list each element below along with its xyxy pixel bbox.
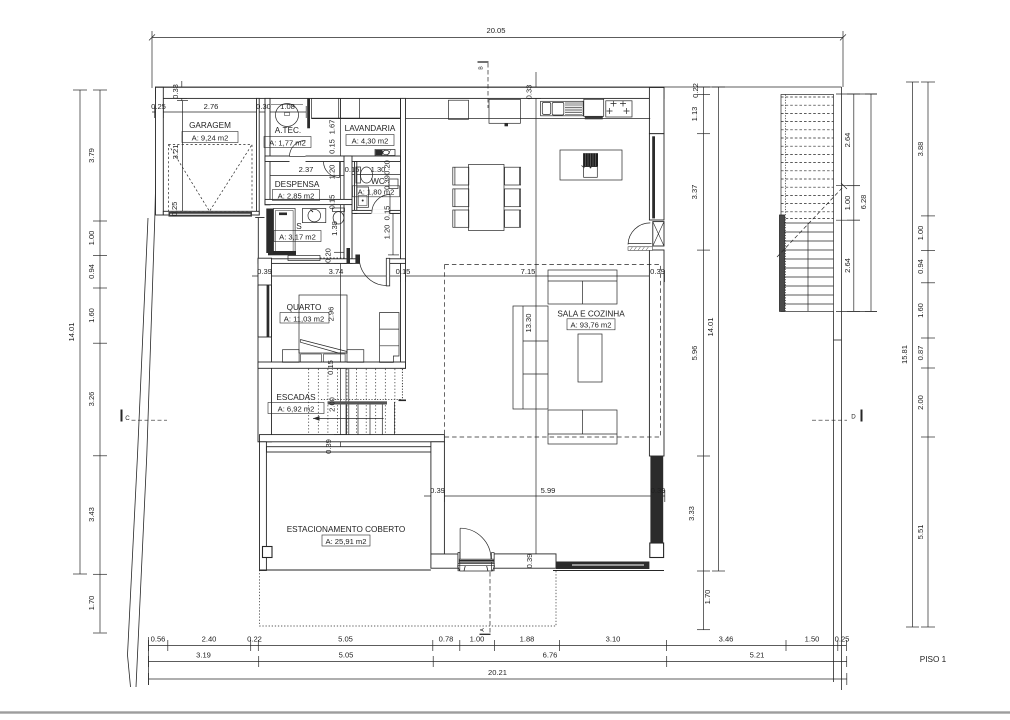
- svg-text:3.10: 3.10: [606, 635, 621, 644]
- svg-text:1.00: 1.00: [916, 226, 925, 241]
- svg-text:20.05: 20.05: [486, 26, 505, 35]
- svg-text:3.79: 3.79: [87, 148, 96, 163]
- svg-text:A: 9,24 m2: A: 9,24 m2: [192, 134, 229, 143]
- svg-text:0.39: 0.39: [430, 486, 445, 495]
- svg-text:GARAGEM: GARAGEM: [189, 121, 231, 130]
- svg-text:0.94: 0.94: [87, 264, 96, 279]
- svg-text:A: 11,03 m2: A: 11,03 m2: [284, 315, 324, 324]
- svg-text:0.15: 0.15: [345, 165, 360, 174]
- svg-text:3.74: 3.74: [329, 267, 344, 276]
- svg-text:2.96: 2.96: [327, 307, 336, 322]
- svg-text:0.78: 0.78: [439, 635, 454, 644]
- svg-text:3.33: 3.33: [687, 506, 696, 521]
- svg-text:1.20: 1.20: [328, 165, 337, 180]
- svg-text:13.30: 13.30: [524, 313, 533, 332]
- svg-text:1.00: 1.00: [843, 196, 852, 211]
- svg-text:1.00: 1.00: [87, 231, 96, 246]
- svg-text:QUARTO: QUARTO: [287, 303, 322, 312]
- svg-text:3.46: 3.46: [719, 635, 734, 644]
- svg-text:0.15: 0.15: [383, 206, 392, 221]
- svg-text:0.15: 0.15: [326, 360, 335, 375]
- svg-text:1.38: 1.38: [330, 221, 339, 236]
- svg-text:3.43: 3.43: [87, 507, 96, 522]
- svg-text:0.56: 0.56: [151, 635, 166, 644]
- svg-text:5.99: 5.99: [541, 486, 556, 495]
- svg-text:1.30: 1.30: [371, 165, 386, 174]
- svg-text:3.37: 3.37: [690, 185, 699, 200]
- svg-text:2.76: 2.76: [204, 102, 219, 111]
- svg-text:1.00: 1.00: [470, 635, 485, 644]
- svg-text:0.39: 0.39: [525, 554, 534, 569]
- svg-text:0.22: 0.22: [691, 83, 700, 98]
- svg-text:0.87: 0.87: [916, 346, 925, 361]
- svg-text:1.60: 1.60: [916, 303, 925, 318]
- svg-text:5.96: 5.96: [690, 346, 699, 361]
- svg-text:5.05: 5.05: [338, 635, 353, 644]
- svg-text:0.25: 0.25: [151, 102, 166, 111]
- svg-text:2.00: 2.00: [328, 397, 337, 412]
- svg-text:2.64: 2.64: [843, 133, 852, 148]
- svg-text:1.08: 1.08: [280, 102, 295, 111]
- svg-text:A.TÉC.: A.TÉC.: [275, 125, 301, 135]
- svg-text:1.70: 1.70: [703, 590, 712, 605]
- svg-text:SALA E COZINHA: SALA E COZINHA: [557, 310, 625, 319]
- svg-text:A: 3,17 m2: A: 3,17 m2: [279, 233, 316, 242]
- svg-text:2.00: 2.00: [916, 395, 925, 410]
- svg-text:3.88: 3.88: [916, 142, 925, 157]
- svg-text:6.28: 6.28: [859, 195, 868, 210]
- svg-text:15.81: 15.81: [900, 345, 909, 364]
- svg-text:3.19: 3.19: [196, 651, 211, 660]
- svg-text:0.15: 0.15: [396, 267, 411, 276]
- svg-text:0.25: 0.25: [170, 202, 179, 217]
- svg-text:0.30: 0.30: [256, 102, 271, 111]
- svg-text:DESPENSA: DESPENSA: [275, 180, 320, 189]
- svg-text:1.67: 1.67: [328, 120, 337, 135]
- svg-text:0.39: 0.39: [650, 267, 665, 276]
- svg-text:A: 25,91 m2: A: 25,91 m2: [326, 537, 367, 546]
- svg-text:0.39: 0.39: [324, 439, 333, 454]
- svg-text:0.20: 0.20: [324, 248, 333, 263]
- svg-text:2.40: 2.40: [202, 635, 217, 644]
- svg-text:0.15: 0.15: [328, 195, 337, 210]
- svg-text:0.39: 0.39: [257, 267, 272, 276]
- svg-text:0.33: 0.33: [171, 84, 180, 99]
- svg-text:1.50: 1.50: [805, 635, 820, 644]
- svg-text:6.76: 6.76: [543, 651, 558, 660]
- svg-text:0.33: 0.33: [525, 85, 534, 100]
- svg-text:0.25: 0.25: [835, 635, 850, 644]
- svg-text:1.60: 1.60: [87, 308, 96, 323]
- svg-text:7.15: 7.15: [521, 267, 536, 276]
- svg-text:14.01: 14.01: [706, 317, 715, 336]
- svg-text:ESTACIONAMENTO COBERTO: ESTACIONAMENTO COBERTO: [287, 525, 406, 534]
- svg-text:3.21: 3.21: [171, 145, 180, 160]
- svg-text:5.21: 5.21: [750, 651, 765, 660]
- svg-text:0.22: 0.22: [247, 635, 262, 644]
- svg-text:D: D: [851, 414, 856, 421]
- svg-text:C: C: [125, 415, 130, 422]
- svg-text:0.94: 0.94: [916, 259, 925, 274]
- svg-text:1.13: 1.13: [690, 107, 699, 122]
- svg-text:1.88: 1.88: [520, 635, 535, 644]
- svg-text:2.64: 2.64: [843, 258, 852, 273]
- svg-text:ESCADAS: ESCADAS: [276, 393, 316, 402]
- svg-text:S: S: [296, 222, 302, 231]
- svg-text:5.51: 5.51: [916, 525, 925, 540]
- svg-text:A: 2,85 m2: A: 2,85 m2: [278, 192, 315, 201]
- svg-text:1.70: 1.70: [87, 596, 96, 611]
- svg-text:0.39: 0.39: [383, 175, 392, 190]
- svg-text:5.05: 5.05: [339, 651, 354, 660]
- svg-text:A: 93,76 m2: A: 93,76 m2: [571, 321, 612, 330]
- svg-text:A: A: [480, 628, 486, 632]
- svg-text:A: 1,77 m2: A: 1,77 m2: [269, 139, 306, 148]
- svg-text:LAVANDARIA: LAVANDARIA: [345, 124, 396, 133]
- svg-text:3.26: 3.26: [87, 392, 96, 407]
- svg-text:0.15: 0.15: [328, 139, 337, 154]
- svg-text:A: 6,92 m2: A: 6,92 m2: [278, 405, 315, 414]
- svg-text:PISO 1: PISO 1: [920, 655, 947, 664]
- svg-text:A: 4,30 m2: A: 4,30 m2: [352, 137, 389, 146]
- svg-text:B: B: [479, 66, 485, 70]
- svg-text:2.37: 2.37: [299, 165, 314, 174]
- svg-text:1.20: 1.20: [383, 225, 392, 240]
- svg-text:14.01: 14.01: [67, 322, 76, 341]
- svg-text:0.39: 0.39: [651, 486, 666, 495]
- svg-text:20.21: 20.21: [488, 668, 507, 677]
